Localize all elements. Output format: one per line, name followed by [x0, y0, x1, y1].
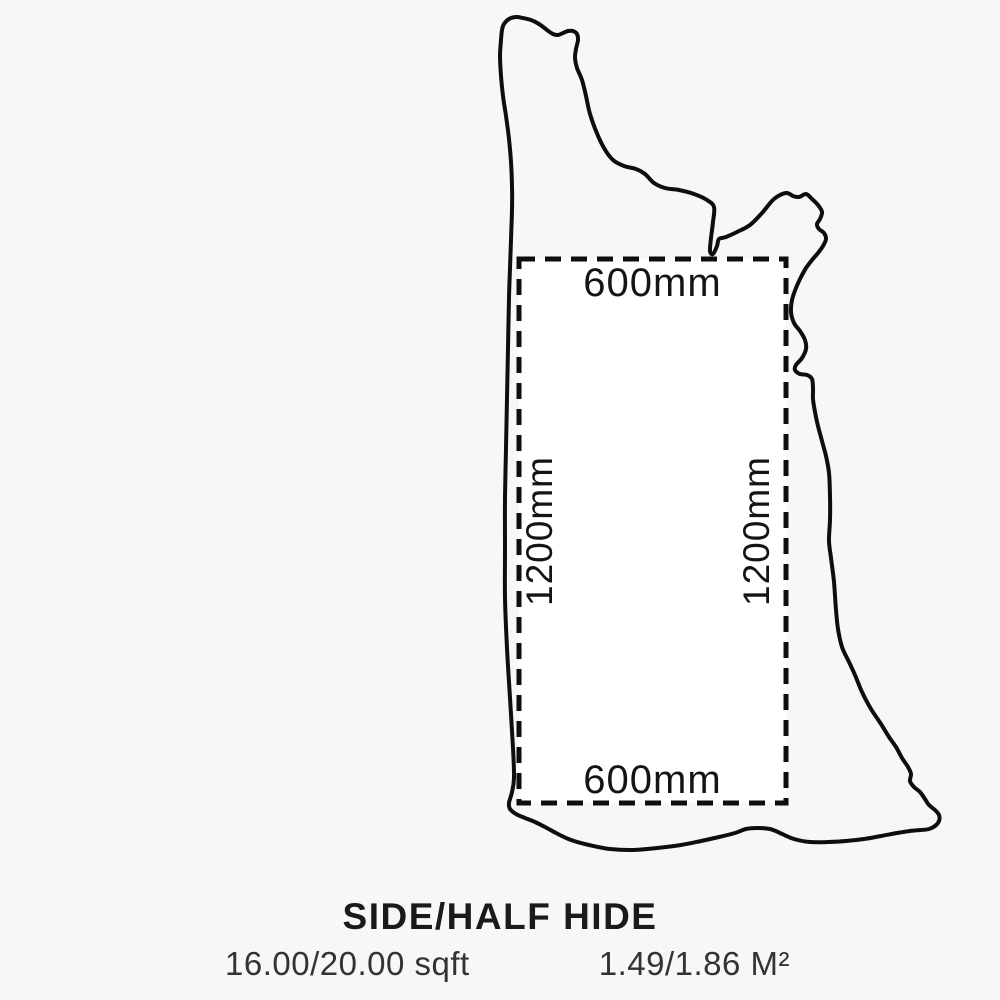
hide-diagram-canvas — [0, 0, 1000, 1000]
dimension-label-left: 1200mm — [518, 421, 562, 641]
area-sqft-value: 16.00/20.00 sqft — [225, 944, 470, 984]
area-values-row: 16.00/20.00 sqft 1.49/1.86 M² — [225, 944, 790, 984]
hide-type-title: SIDE/HALF HIDE — [0, 898, 1000, 935]
dimension-label-bottom: 600mm — [519, 760, 786, 800]
caption-block: SIDE/HALF HIDE — [0, 898, 1000, 935]
dimension-label-right: 1200mm — [735, 421, 779, 641]
hide-diagram: 600mm 1200mm 1200mm 600mm SIDE/HALF HIDE… — [0, 0, 1000, 1000]
dimension-label-top: 600mm — [519, 263, 786, 303]
area-m2-value: 1.49/1.86 M² — [599, 944, 790, 984]
